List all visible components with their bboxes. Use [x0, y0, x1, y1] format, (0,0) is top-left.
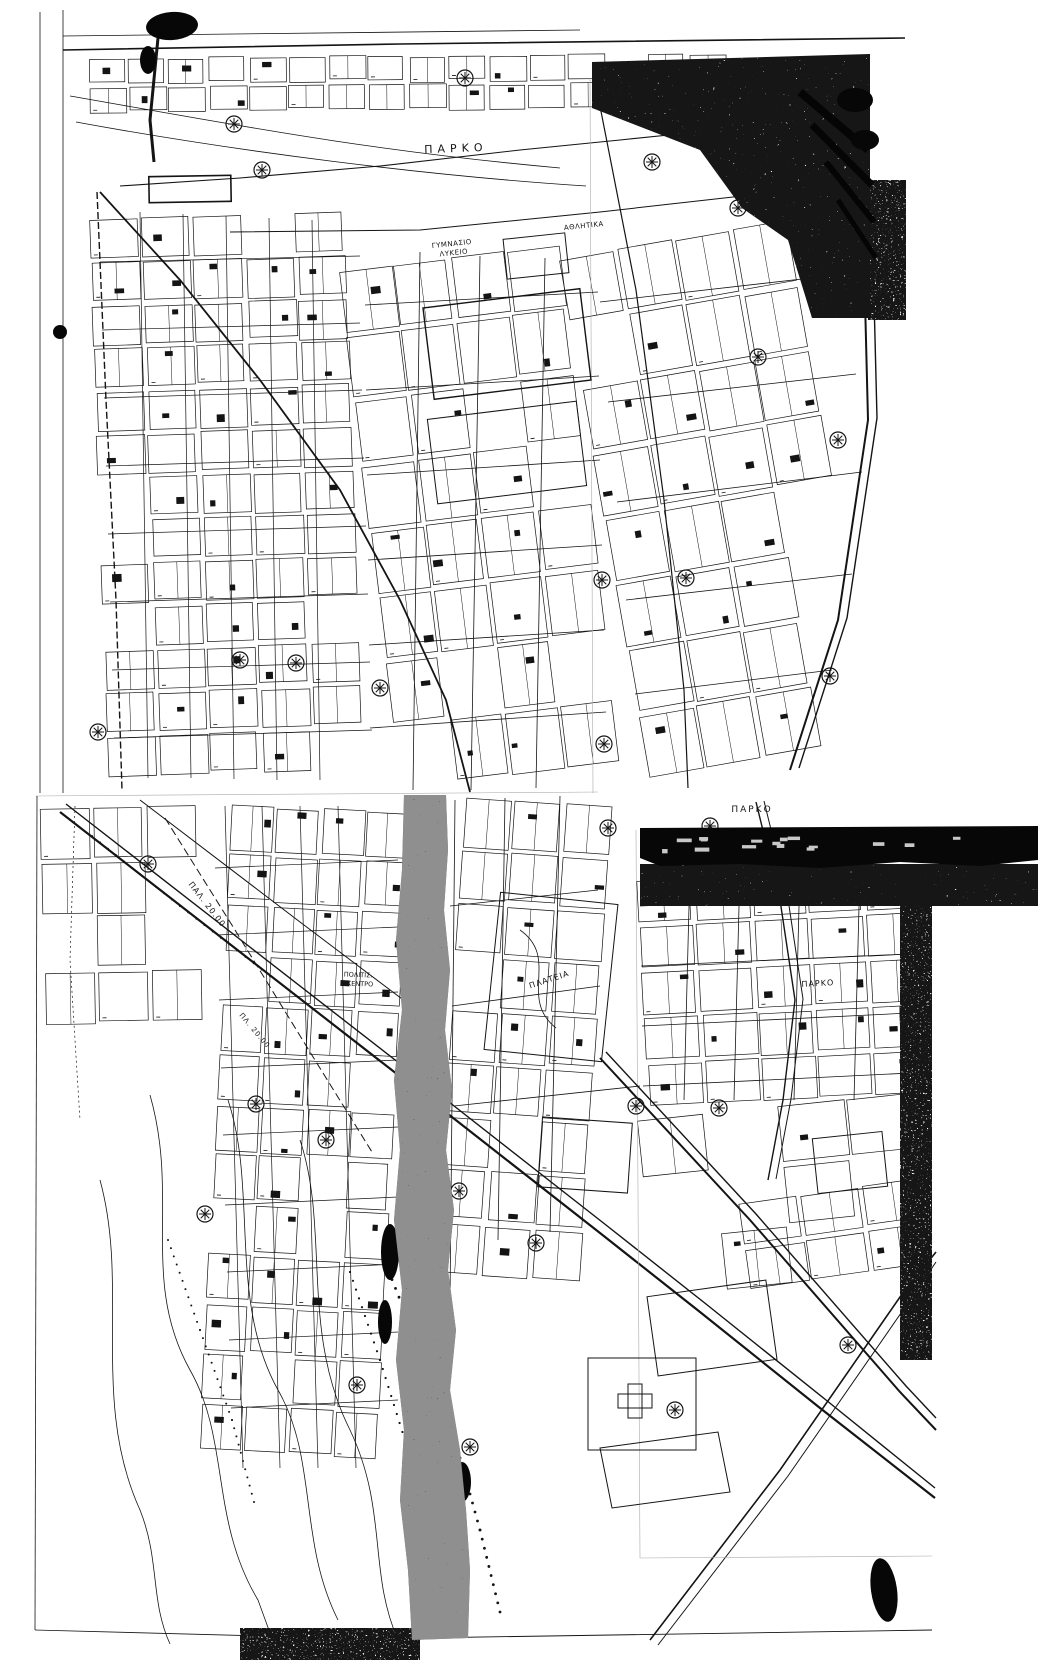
parcel	[158, 649, 206, 688]
dotted-path-dot	[236, 950, 238, 952]
parcel-division	[315, 1312, 317, 1356]
parcel-division	[419, 263, 426, 321]
map-road	[140, 212, 148, 778]
dotted-path-dot	[249, 1485, 251, 1487]
dotted-path-dot	[358, 1297, 360, 1299]
building-footprint	[274, 1041, 280, 1048]
parcel-division	[130, 651, 131, 689]
map-road	[230, 196, 742, 232]
map-road	[643, 1072, 932, 1086]
block-number-marker	[140, 856, 156, 872]
parcel-division	[276, 430, 277, 467]
building-footprint	[233, 625, 240, 632]
building-footprint	[107, 458, 116, 463]
toner-speckle	[240, 1628, 420, 1660]
dotted-path-dot	[487, 1565, 490, 1568]
dotted-path-dot	[496, 1601, 499, 1604]
building-footprint	[508, 1214, 518, 1220]
parcel-division	[771, 292, 781, 351]
parcel-division	[782, 356, 792, 415]
parcel	[530, 55, 565, 80]
cemetery-plot-outline	[600, 1432, 730, 1508]
dotted-path-dot	[231, 1419, 233, 1421]
parcel-division	[586, 256, 596, 315]
map-label: ΠΑΡΚΟ	[801, 978, 834, 989]
building-footprint	[182, 65, 191, 71]
parcel	[449, 1011, 497, 1063]
building-footprint	[877, 1247, 884, 1253]
dotted-path-dot	[390, 1395, 392, 1397]
ink-blob	[867, 1557, 902, 1624]
building-footprint	[658, 912, 667, 918]
parcel	[205, 1305, 247, 1352]
block-number-marker	[596, 736, 612, 752]
dotted-path-dot	[184, 1288, 186, 1290]
terrain-line	[228, 1100, 338, 1620]
parcel-division	[522, 1015, 525, 1064]
block-number-marker	[594, 572, 610, 588]
map-road	[642, 1012, 931, 1026]
map-road	[36, 792, 598, 796]
parcel-division	[318, 213, 319, 251]
parcel-division	[667, 927, 669, 966]
map-road	[600, 1058, 936, 1430]
dotted-path-dot	[147, 880, 149, 882]
parcel	[368, 56, 403, 80]
building-footprint	[295, 1090, 301, 1097]
building-footprint	[177, 707, 184, 712]
building-footprint	[210, 500, 215, 506]
map-road	[35, 796, 37, 1630]
parcel-division	[574, 964, 577, 1012]
stamp-text-remnant	[695, 848, 710, 852]
parcel-division	[666, 713, 676, 773]
dotted-path-dot	[355, 1289, 357, 1291]
parcel	[90, 219, 139, 258]
parcel-division	[547, 379, 554, 439]
building-footprint	[281, 1149, 288, 1153]
dotted-path-dot	[474, 1511, 477, 1514]
parcel	[257, 602, 305, 640]
parcel-division	[783, 692, 793, 751]
parcel-division	[272, 1258, 274, 1303]
parcel-division	[67, 864, 68, 914]
parcel-number-mark	[596, 445, 600, 446]
dotted-path-dot	[228, 1411, 230, 1413]
parcel-division	[129, 693, 130, 731]
dotted-path-dot	[170, 1247, 172, 1249]
dotted-path-dot	[195, 918, 197, 920]
block-number-marker	[372, 680, 388, 696]
parcel	[92, 306, 141, 346]
parcel-division	[835, 1237, 840, 1275]
building-footprint	[513, 475, 522, 482]
building-footprint	[576, 1039, 583, 1046]
building-footprint	[325, 371, 332, 376]
parcel-division	[334, 962, 336, 1006]
ink-blob	[378, 1300, 392, 1344]
dotted-path-dot	[187, 911, 189, 913]
map-label: ΠΑΡΚΟ	[731, 805, 772, 815]
map-label: ΚΕΝΤΡΟ	[347, 980, 374, 989]
parcel	[490, 85, 525, 109]
map-road	[60, 812, 935, 1498]
block-number-marker	[830, 432, 846, 448]
building-footprint	[217, 414, 225, 422]
parcel-division	[121, 915, 122, 964]
map-road	[370, 712, 606, 728]
map-road	[635, 670, 832, 694]
scan-edge-band	[640, 826, 1038, 868]
building-footprint	[800, 1134, 808, 1140]
stamp-text-remnant	[780, 838, 788, 842]
dotted-path-dot	[481, 1538, 484, 1541]
parcel-division	[330, 1009, 332, 1055]
building-footprint	[209, 264, 217, 270]
map-road	[269, 218, 277, 780]
parcel-division	[251, 806, 253, 851]
building-footprint	[454, 410, 461, 415]
dotted-path-dot	[99, 841, 101, 843]
building-footprint	[112, 574, 122, 582]
block-marker-layer	[90, 70, 919, 1455]
parcel	[457, 317, 517, 383]
parcel	[249, 300, 298, 338]
parcel-division	[891, 1182, 896, 1220]
parcel-division	[118, 348, 119, 386]
parcel-division	[691, 506, 702, 567]
building-footprint	[858, 1016, 864, 1022]
parcel-division	[671, 1017, 673, 1057]
building-footprint	[264, 820, 271, 828]
dotted-path-dot	[228, 943, 230, 945]
dotted-path-dot	[361, 1306, 363, 1308]
parcel	[244, 1407, 286, 1452]
building-footprint	[889, 1026, 898, 1032]
parcel-division	[610, 386, 620, 444]
building-footprint	[528, 814, 537, 820]
fold-stripe-flecks	[394, 795, 470, 1640]
dotted-path-dot	[393, 1404, 395, 1406]
parcel-division	[121, 863, 122, 913]
map-road	[106, 458, 364, 466]
parcel	[108, 737, 157, 777]
dotted-path-dot	[196, 1321, 198, 1323]
dotted-path-dot	[190, 1304, 192, 1306]
dotted-path-dot	[367, 1324, 369, 1326]
block-number-marker	[462, 1439, 478, 1455]
parcel-division	[572, 1018, 575, 1065]
parcel	[456, 903, 504, 953]
parcel	[99, 972, 149, 1021]
building-footprint	[393, 885, 400, 891]
block-number-marker	[678, 570, 694, 586]
scanned-map-page: ΠΑΡΚΟΠΑΡΚΟΠΑΡΚΟΠΑΡΚΟΠΑΡΚΟΓΥΜΝΑΣΙΟΛΥΚΕΙΟΑ…	[0, 0, 1053, 1677]
map-road	[102, 323, 360, 330]
block-number-marker	[318, 1132, 334, 1148]
parcel	[703, 1013, 759, 1057]
parcel-division	[292, 909, 294, 953]
toner-speckle	[640, 864, 1038, 906]
building-footprint	[635, 530, 642, 538]
parcel-division	[169, 306, 170, 342]
stamp-text-remnant	[788, 837, 800, 840]
building-footprint	[517, 977, 523, 982]
building-footprint	[686, 413, 697, 421]
stamp-text-remnant	[742, 845, 756, 848]
dotted-path-dot	[202, 1337, 204, 1339]
building-outline	[618, 1394, 652, 1408]
parcel-division	[227, 475, 228, 513]
dotted-path-dot	[379, 1359, 381, 1361]
building-footprint	[172, 309, 178, 314]
building-outline	[628, 1384, 642, 1418]
scan-artifact-layer	[53, 10, 1038, 1660]
building-footprint	[655, 726, 666, 734]
parcel-division	[179, 607, 180, 644]
building-footprint	[238, 100, 245, 106]
parcel	[247, 258, 295, 298]
stamp-text-remnant	[905, 843, 915, 847]
map-label: ΠΛΑΤΕΙΑ	[528, 969, 570, 990]
parcel-division	[770, 628, 781, 688]
map-road	[498, 798, 505, 1240]
parcel	[250, 87, 287, 111]
parcel-number-mark	[700, 697, 704, 698]
parcel-division	[523, 961, 526, 1009]
parcel-division	[586, 805, 589, 853]
dotted-path-dot	[179, 1272, 181, 1274]
stamp-text-remnant	[953, 837, 960, 840]
dotted-path-dot	[490, 1574, 493, 1577]
dotted-path-dot	[253, 962, 255, 964]
map-road	[536, 258, 545, 788]
map-road	[114, 730, 372, 738]
block-number-marker	[628, 1098, 644, 1114]
map-road	[100, 256, 360, 262]
parcel	[153, 518, 201, 556]
parcel	[473, 446, 533, 513]
parcel-number-mark	[753, 1284, 757, 1285]
map-road	[641, 953, 930, 966]
map-road	[365, 292, 598, 305]
dotted-path-dot	[91, 835, 93, 837]
parcel	[734, 557, 799, 626]
building-footprint	[232, 1373, 237, 1380]
parcel-division	[282, 645, 283, 682]
parcel-division	[645, 245, 655, 304]
map-label: ΠΑΡΚΟ	[424, 141, 488, 156]
parcel	[699, 968, 753, 1011]
dotted-path-dot	[376, 1350, 378, 1352]
dotted-path-dot	[214, 1370, 216, 1372]
building-footprint	[307, 314, 317, 320]
block-number-marker	[667, 1402, 683, 1418]
dotted-path-dot	[399, 1422, 401, 1424]
parcel-division	[286, 690, 287, 727]
dotted-path-dot	[246, 1476, 248, 1478]
building-footprint	[266, 672, 273, 679]
map-road	[450, 890, 598, 906]
parcel	[147, 806, 196, 858]
parcel-division	[228, 517, 229, 555]
block-number-marker	[248, 1096, 264, 1112]
parcel-number-mark	[689, 296, 693, 297]
parcel-division	[218, 304, 219, 341]
ink-blob	[851, 130, 879, 150]
map-road	[413, 252, 420, 790]
dotted-path-dot	[244, 956, 246, 958]
dotted-path-dot	[179, 905, 181, 907]
block-number-marker	[226, 116, 242, 132]
building-footprint	[790, 454, 801, 462]
dotted-path-dot	[352, 1280, 354, 1282]
map-label: ΠΑΛ. 20.00	[187, 880, 228, 929]
parcel	[101, 564, 149, 604]
block-number-marker	[90, 724, 106, 740]
building-footprint	[514, 614, 521, 620]
dotted-path-dot	[387, 1386, 389, 1388]
map-label: ΠΟΛΙΤΙΣ.	[344, 971, 373, 980]
parcel-division	[754, 1230, 760, 1285]
building-outline	[503, 233, 569, 279]
parcel-number-mark	[814, 1275, 818, 1276]
parcel	[254, 473, 301, 513]
building-footprint	[292, 623, 299, 630]
dotted-path-dot	[115, 854, 117, 856]
parcel	[346, 331, 406, 397]
building-footprint	[603, 491, 613, 497]
parcel-division	[366, 269, 373, 329]
stamp-text-remnant	[807, 847, 815, 850]
map-road	[300, 806, 318, 1468]
map-road	[223, 1127, 398, 1135]
map-road	[550, 796, 560, 1232]
building-footprint	[271, 1190, 281, 1198]
map-road	[183, 214, 191, 778]
dotted-path-dot	[238, 1444, 240, 1446]
building-footprint	[745, 461, 754, 469]
parcel-division	[335, 643, 336, 681]
map-road	[63, 38, 905, 50]
parcel	[193, 216, 242, 256]
ink-blob	[53, 325, 67, 339]
parcel	[251, 58, 287, 82]
building-footprint	[508, 87, 514, 92]
building-footprint	[495, 73, 501, 78]
building-footprint	[153, 234, 162, 241]
building-footprint	[267, 1271, 275, 1278]
parcel-division	[702, 236, 712, 295]
building-footprint	[500, 1248, 510, 1256]
dotted-path-dot	[173, 1255, 175, 1257]
dotted-path-dot	[139, 873, 141, 875]
dotted-path-dot	[349, 1271, 351, 1273]
parcel	[289, 1408, 333, 1454]
cadastral-map-canvas: ΠΑΡΚΟΠΑΡΚΟΠΑΡΚΟΠΑΡΚΟΠΑΡΚΟΓΥΜΝΑΣΙΟΛΥΚΕΙΟΑ…	[0, 0, 1053, 1677]
stamp-text-remnant	[772, 842, 780, 845]
terrain-layer	[70, 96, 586, 1644]
parcel	[505, 708, 565, 775]
map-label: ΑΘΛΗΤΙΚΑ	[563, 220, 604, 232]
building-footprint	[524, 922, 533, 927]
parcel	[606, 511, 669, 580]
building-footprint	[595, 885, 605, 890]
building-footprint	[318, 1034, 327, 1039]
dotted-path-dot	[396, 1413, 398, 1415]
parcel-division	[840, 963, 842, 1002]
parcel-number-mark	[877, 1266, 881, 1267]
map-road	[471, 256, 480, 790]
parcel-division	[534, 803, 537, 851]
parcel	[507, 246, 566, 312]
building-footprint	[162, 413, 169, 418]
building-footprint	[644, 630, 652, 636]
building-footprint	[780, 713, 788, 719]
parcel	[554, 911, 604, 962]
dotted-path-dot	[222, 1394, 224, 1396]
parcel	[401, 324, 460, 390]
building-footprint	[368, 1301, 378, 1308]
building-footprint	[511, 1023, 518, 1031]
building-footprint	[370, 286, 380, 294]
parcel	[528, 85, 564, 108]
building-footprint	[222, 1258, 229, 1264]
building-footprint	[421, 680, 431, 686]
parcel	[762, 1056, 818, 1100]
parcel-division	[893, 914, 895, 955]
building-footprint	[735, 949, 744, 955]
map-road	[215, 860, 398, 868]
parcel-number-mark	[747, 1240, 751, 1241]
ink-blob	[145, 10, 199, 42]
dotted-path-dot	[211, 1362, 213, 1364]
building-footprint	[683, 483, 689, 490]
parcel	[303, 427, 352, 467]
parcel-number-mark	[699, 362, 703, 363]
parcel	[209, 689, 258, 728]
parcel-division	[476, 717, 483, 776]
dotted-path-dot	[216, 1378, 218, 1380]
parcel-grid-zone	[637, 1092, 930, 1296]
dotted-path-dot	[269, 975, 271, 977]
map-road	[66, 804, 935, 1488]
building-footprint	[165, 351, 173, 356]
map-road	[598, 96, 688, 788]
map-label: ΛΥΚΕΙΟ	[439, 248, 468, 259]
map-road	[108, 526, 366, 534]
parcel-division	[116, 262, 117, 299]
building-footprint	[512, 743, 518, 748]
parcel-division	[556, 1232, 559, 1279]
block-number-marker	[197, 1206, 213, 1222]
building-footprint	[734, 1241, 741, 1246]
building-footprint	[114, 288, 124, 293]
map-road	[606, 1052, 936, 1418]
dotted-path-dot	[398, 1296, 401, 1299]
block-number-marker	[528, 1235, 544, 1251]
dotted-path-dot	[155, 886, 157, 888]
parcel-division	[516, 1068, 519, 1114]
building-footprint	[525, 656, 534, 663]
block-number-marker	[822, 668, 838, 684]
parcel	[275, 809, 318, 854]
parcel	[350, 1113, 394, 1159]
building-outline	[427, 401, 586, 504]
block-number-marker	[644, 154, 660, 170]
building-footprint	[514, 530, 520, 537]
parcel-division	[523, 645, 530, 705]
